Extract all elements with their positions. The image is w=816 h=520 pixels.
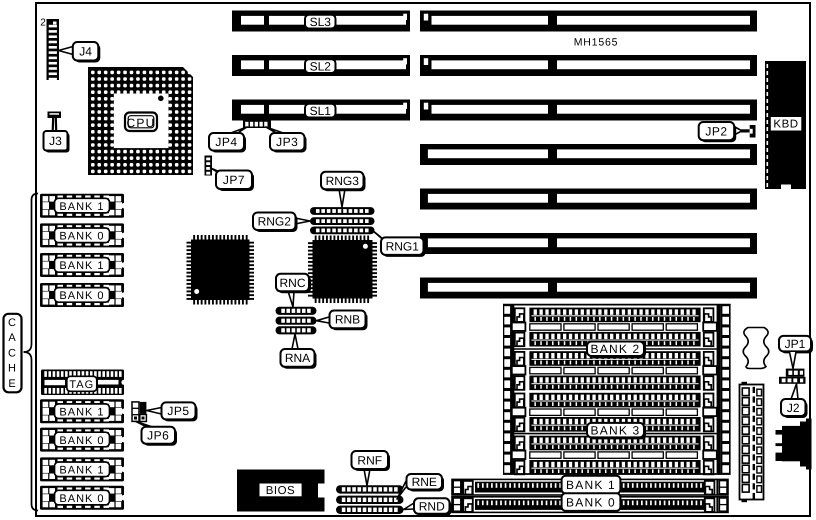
svg-text:C: C [8, 347, 16, 359]
svg-text:TAG: TAG [69, 379, 94, 391]
svg-text:SL2: SL2 [310, 59, 332, 73]
svg-text:MH1565: MH1565 [574, 37, 619, 49]
svg-text:BANK 0: BANK 0 [59, 290, 104, 302]
svg-text:JP7: JP7 [223, 173, 245, 187]
svg-text:KBD: KBD [773, 119, 798, 131]
svg-text:JP2: JP2 [705, 124, 727, 138]
svg-text:BANK 1: BANK 1 [59, 465, 104, 477]
svg-text:BANK 0: BANK 0 [59, 435, 104, 447]
svg-text:RNG3: RNG3 [326, 174, 360, 188]
svg-text:CPU: CPU [127, 116, 156, 130]
svg-text:C: C [8, 317, 16, 329]
svg-text:E: E [8, 378, 15, 390]
svg-text:RND: RND [419, 499, 445, 513]
svg-text:RNC: RNC [280, 276, 306, 290]
svg-text:BANK 0: BANK 0 [59, 493, 104, 505]
svg-text:BANK 1: BANK 1 [59, 260, 104, 272]
svg-text:J2: J2 [787, 401, 800, 415]
svg-text:BANK 2: BANK 2 [591, 342, 641, 356]
svg-text:RNG2: RNG2 [258, 215, 292, 229]
svg-text:JP3: JP3 [276, 135, 298, 149]
svg-text:H: H [8, 363, 16, 375]
svg-text:BANK 1: BANK 1 [59, 407, 104, 419]
svg-text:JP1: JP1 [785, 337, 806, 351]
svg-text:BIOS: BIOS [266, 485, 295, 497]
svg-text:BANK 0: BANK 0 [566, 495, 616, 509]
svg-text:BANK 1: BANK 1 [59, 201, 104, 213]
svg-text:JP6: JP6 [147, 429, 169, 443]
svg-text:A: A [8, 332, 16, 344]
svg-text:2: 2 [40, 18, 46, 29]
svg-text:RNB: RNB [335, 313, 360, 327]
svg-text:SL1: SL1 [310, 104, 332, 118]
svg-text:RNA: RNA [285, 351, 310, 365]
svg-text:J3: J3 [49, 134, 62, 148]
svg-text:SL3: SL3 [310, 15, 332, 29]
svg-text:JP4: JP4 [215, 135, 237, 149]
svg-text:RNE: RNE [412, 475, 437, 489]
svg-text:BANK 1: BANK 1 [566, 478, 616, 492]
svg-text:RNF: RNF [357, 453, 382, 467]
svg-text:RNG1: RNG1 [386, 239, 420, 253]
svg-text:BANK 3: BANK 3 [591, 423, 641, 437]
svg-text:J4: J4 [79, 45, 92, 59]
svg-text:BANK 0: BANK 0 [59, 231, 104, 243]
svg-text:JP5: JP5 [167, 404, 189, 418]
